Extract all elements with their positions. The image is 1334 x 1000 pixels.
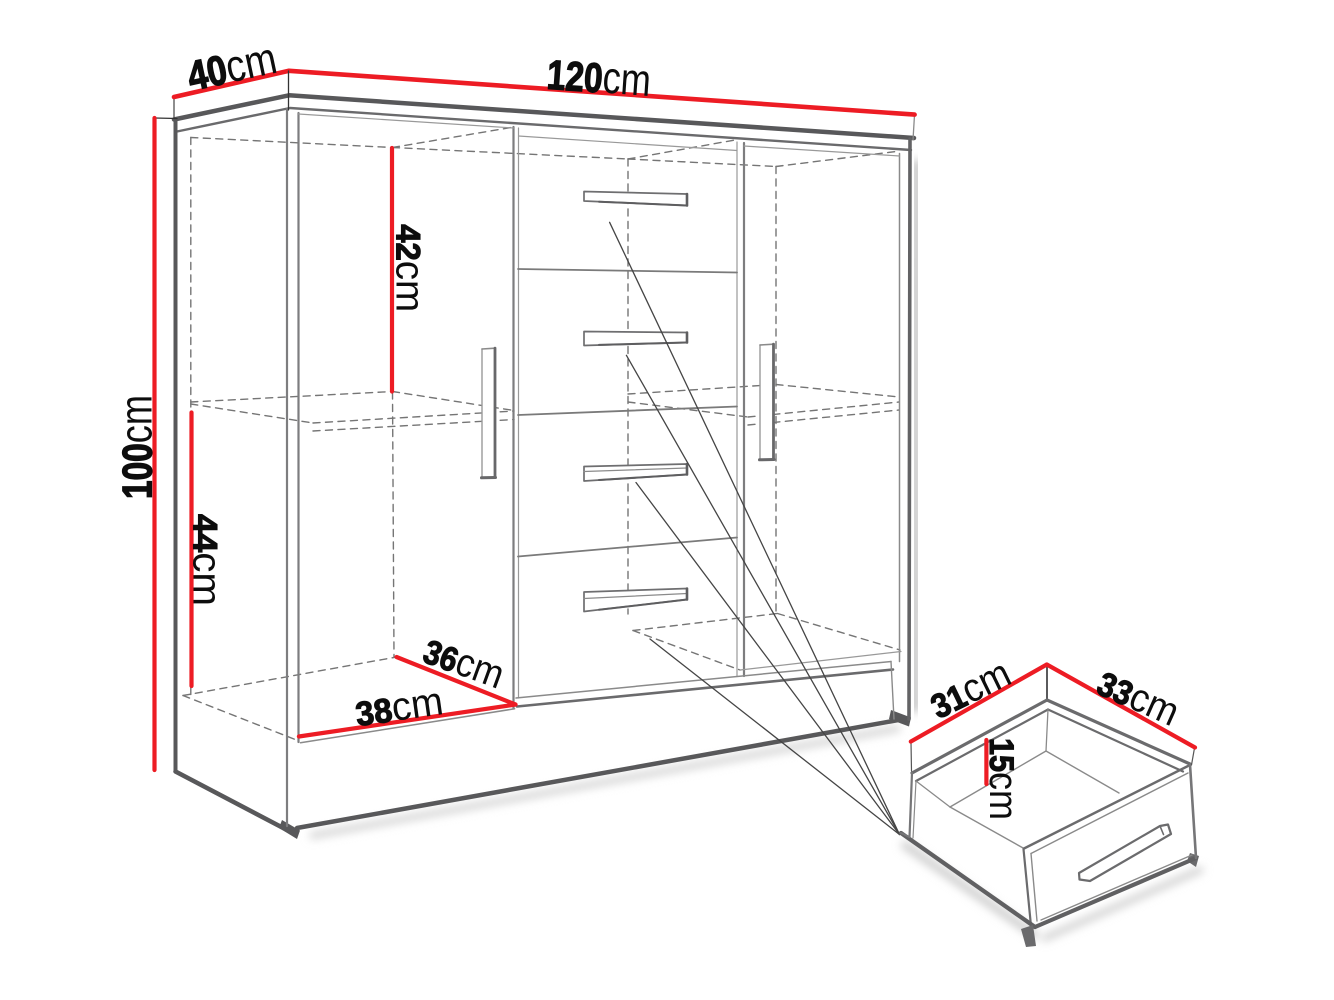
svg-text:100cm: 100cm — [111, 395, 162, 499]
svg-text:44cm: 44cm — [185, 514, 229, 606]
svg-text:120cm: 120cm — [545, 48, 652, 106]
svg-text:15cm: 15cm — [981, 738, 1025, 820]
svg-text:42cm: 42cm — [388, 224, 432, 312]
